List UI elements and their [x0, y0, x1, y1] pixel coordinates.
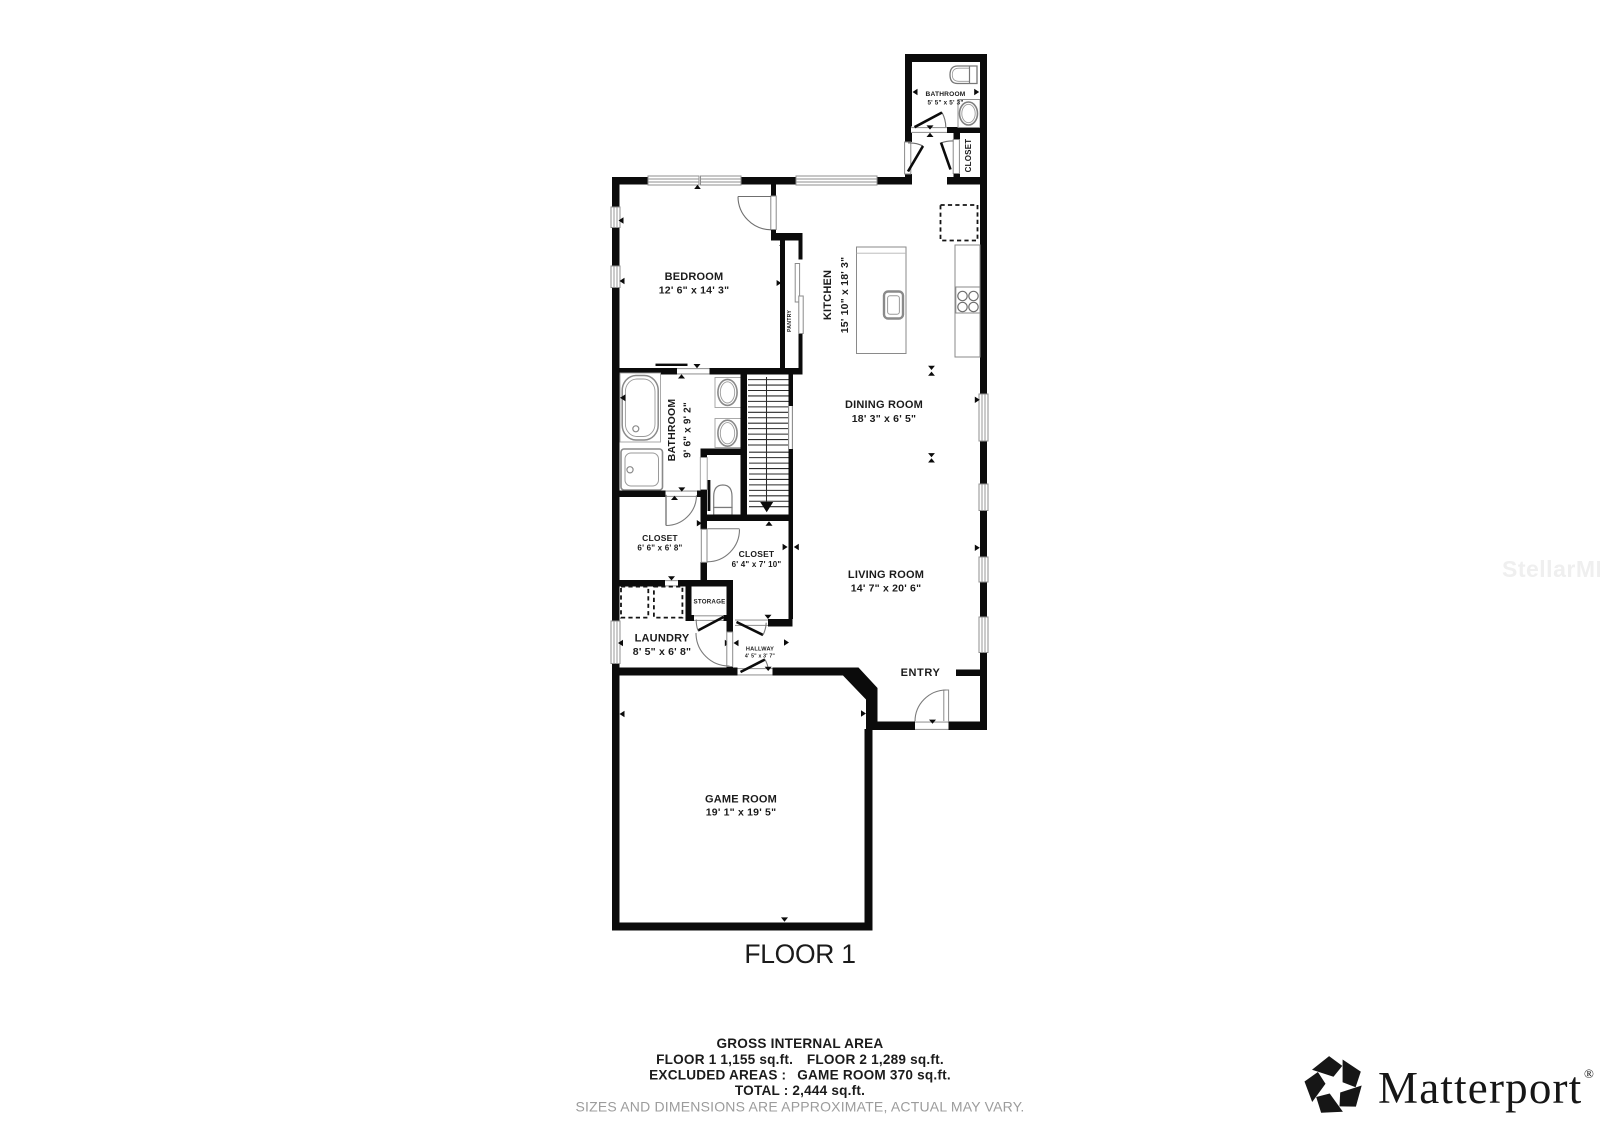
svg-text:LIVING ROOM: LIVING ROOM — [848, 569, 924, 581]
svg-text:PANTRY: PANTRY — [787, 310, 793, 332]
svg-text:GROSS INTERNAL AREA: GROSS INTERNAL AREA — [717, 1036, 884, 1051]
svg-text:TOTAL : 2,444 sq.ft.: TOTAL : 2,444 sq.ft. — [735, 1083, 865, 1098]
svg-text:EXCLUDED AREAS : GAME ROOM 37: EXCLUDED AREAS : GAME ROOM 370 sq.ft. — [649, 1068, 951, 1083]
svg-text:®: ® — [1584, 1066, 1594, 1081]
svg-text:18' 3" x 6' 5": 18' 3" x 6' 5" — [852, 413, 916, 425]
svg-text:6' 4" x 7' 10": 6' 4" x 7' 10" — [732, 560, 782, 569]
svg-text:DINING ROOM: DINING ROOM — [845, 399, 923, 411]
svg-text:9' 6" x 9' 2": 9' 6" x 9' 2" — [683, 402, 694, 458]
svg-text:BATHROOM: BATHROOM — [926, 91, 966, 98]
svg-text:8' 5" x 6' 8": 8' 5" x 6' 8" — [633, 646, 691, 658]
svg-text:StellarMLS: StellarMLS — [1502, 556, 1600, 582]
svg-text:ENTRY: ENTRY — [901, 667, 941, 679]
svg-text:6' 6" x 6' 8": 6' 6" x 6' 8" — [637, 544, 682, 553]
svg-text:BATHROOM: BATHROOM — [666, 399, 678, 462]
svg-text:FLOOR 1 1,155 sq.ft. FLOOR 2 1: FLOOR 1 1,155 sq.ft. FLOOR 2 1,289 sq.ft… — [656, 1052, 944, 1067]
svg-text:12' 6" x 14' 3": 12' 6" x 14' 3" — [659, 285, 730, 297]
svg-text:HALLWAY: HALLWAY — [746, 647, 774, 653]
svg-text:BEDROOM: BEDROOM — [665, 271, 724, 283]
svg-text:14' 7" x 20' 6": 14' 7" x 20' 6" — [851, 583, 922, 595]
svg-text:CLOSET: CLOSET — [739, 549, 775, 559]
svg-text:CLOSET: CLOSET — [642, 533, 678, 543]
svg-text:STORAGE: STORAGE — [694, 599, 726, 606]
svg-text:4' 5" x 3' 7": 4' 5" x 3' 7" — [745, 654, 776, 660]
svg-text:15' 10" x 18' 3": 15' 10" x 18' 3" — [839, 257, 851, 334]
svg-text:KITCHEN: KITCHEN — [822, 270, 834, 320]
svg-text:Matterport: Matterport — [1378, 1063, 1582, 1113]
svg-text:5' 5" x 5' 3": 5' 5" x 5' 3" — [927, 100, 963, 107]
svg-text:LAUNDRY: LAUNDRY — [635, 633, 690, 645]
svg-text:FLOOR 1: FLOOR 1 — [744, 939, 855, 969]
svg-text:CLOSET: CLOSET — [964, 139, 973, 173]
svg-text:SIZES AND DIMENSIONS ARE APPRO: SIZES AND DIMENSIONS ARE APPROXIMATE, AC… — [575, 1099, 1024, 1115]
svg-text:GAME ROOM: GAME ROOM — [705, 794, 777, 806]
svg-text:19' 1" x 19' 5": 19' 1" x 19' 5" — [706, 807, 777, 819]
